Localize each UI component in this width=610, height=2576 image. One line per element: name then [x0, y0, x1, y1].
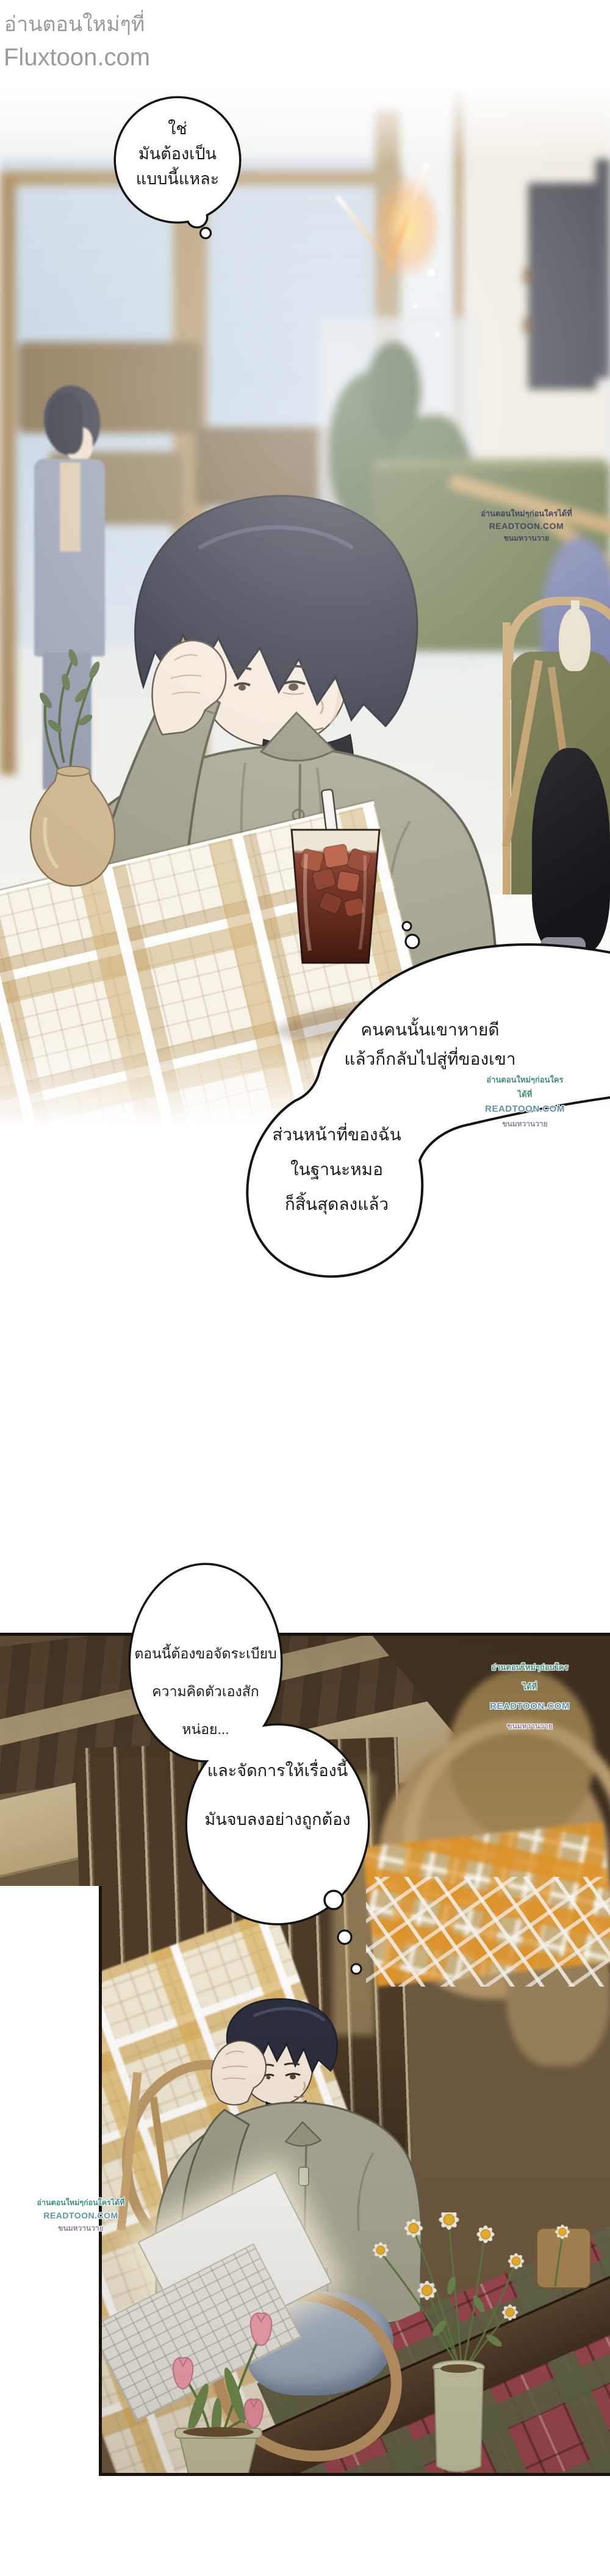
watermark-line1: อ่านตอนใหม่ๆก่อนใครได้ที่	[481, 508, 572, 520]
watermark-line3: ขนมหวานวาย	[30, 2222, 131, 2235]
bubble2-line: แล้วก็กลับไปสู่ที่ของเขา	[293, 1045, 567, 1074]
glass-bubble	[412, 303, 418, 309]
bubble3-line: ก็สิ้นสุดลงแล้ว	[245, 1187, 428, 1221]
glass-bubble	[427, 268, 436, 277]
bubble4-text: ตอนนี้ต้องขอจัดระเบียบ ความคิดตัวเองสักห…	[132, 1635, 279, 1748]
wood-pillar	[564, 2023, 610, 2476]
panel2-border-left	[99, 1886, 102, 2476]
thought-tail-dot	[406, 935, 419, 948]
bubble4-line: ความคิดตัวเองสักหน่อย...	[132, 1672, 279, 1748]
plant-leaves	[37, 648, 101, 735]
watermark-line3: ขนมหวานวาย	[486, 1716, 574, 1736]
bubble4-line: ตอนนี้ต้องขอจัดระเบียบ	[132, 1635, 279, 1672]
vase-soil	[440, 2364, 477, 2373]
bubble3-line: ส่วนหน้าที่ของฉัน	[245, 1117, 428, 1152]
webtoon-page: อ่านตอนใหม่ๆที่ Fluxtoon.com	[0, 0, 610, 2576]
watermark-line1: อ่านตอนใหม่ๆก่อนใครได้ที่	[486, 1658, 574, 1697]
watermark-readtoon-3: อ่านตอนใหม่ๆก่อนใครได้ที่ READTOON.COM ข…	[486, 1658, 574, 1736]
panel2-border-bottom	[99, 2473, 610, 2476]
watermark-line3: ขนมหวานวาย	[481, 532, 572, 544]
watermark-readtoon-4: อ่านตอนใหม่ๆก่อนใครได้ที่ READTOON.COM ข…	[30, 2196, 131, 2235]
pot-soil	[183, 2427, 254, 2437]
thought-tail-dot	[338, 1930, 351, 1944]
watermark-readtoon-2: อ่านตอนใหม่ๆก่อนใครได้ที่ READTOON.COM ข…	[481, 1073, 569, 1131]
thought-tail-dot	[403, 922, 411, 930]
watermark-line2: READTOON.COM	[486, 1697, 574, 1716]
bubble5-line: และจัดการให้เรื่องนี้	[190, 1746, 365, 1795]
tulip-pot	[143, 2304, 290, 2475]
picture-frame	[595, 159, 610, 378]
plant-foliage	[366, 342, 421, 439]
daisy-stems	[381, 2222, 562, 2367]
bubble1-line: ใช่	[118, 117, 237, 142]
bubble5-text: และจัดการให้เรื่องนี้ มันจบลงอย่างถูกต้อ…	[190, 1746, 365, 1844]
watermark-line2: READTOON.COM	[30, 2209, 131, 2222]
bubble3-text: ส่วนหน้าที่ของฉัน ในฐานะหมอ ก็สิ้นสุดลงแ…	[245, 1117, 428, 1221]
thought-tail-dot	[201, 228, 211, 239]
bubble1-line: มันต้องเป็น	[118, 142, 237, 167]
bubble5-line: มันจบลงอย่างถูกต้อง	[190, 1795, 365, 1844]
watermark-line1: อ่านตอนใหม่ๆก่อนใครได้ที่	[30, 2196, 131, 2209]
watermark-line3: ขนมหวานวาย	[481, 1117, 569, 1131]
frame-hinge	[523, 268, 532, 284]
bubble3-line: ในฐานะหมอ	[245, 1152, 428, 1187]
woman-hair-bang	[48, 393, 83, 454]
watermark-line2: READTOON.COM	[481, 520, 572, 532]
header-line2-site-url: Fluxtoon.com	[4, 41, 145, 74]
picture-frame	[528, 183, 597, 389]
watermark-readtoon-1: อ่านตอนใหม่ๆก่อนใครได้ที่ READTOON.COM ข…	[481, 508, 572, 544]
bud-vase-plant	[12, 635, 116, 915]
bubble1-line: แบบนี้แหละ	[118, 167, 237, 192]
watermark-line2: READTOON.COM	[481, 1102, 569, 1117]
bubble2-line: คนคนนั้นเขาหายดี	[293, 1015, 567, 1045]
thought-tail-dot	[325, 1891, 343, 1909]
pot-body	[180, 2438, 257, 2473]
watermark-line1: อ่านตอนใหม่ๆก่อนใครได้ที่	[481, 1073, 569, 1102]
tulip-flowers	[173, 2313, 272, 2428]
site-header: อ่านตอนใหม่ๆที่ Fluxtoon.com	[4, 8, 145, 74]
thought-tail-dot	[351, 1964, 361, 1974]
bubble2-text: คนคนนั้นเขาหายดี แล้วก็กลับไปสู่ที่ของเข…	[293, 1015, 567, 1074]
top-fade	[0, 85, 610, 165]
bubble1-text: ใช่ มันต้องเป็น แบบนี้แหละ	[118, 117, 237, 192]
daisy-vase-body	[434, 2369, 483, 2472]
white-grid-railing	[366, 1877, 610, 1987]
frame-hinge	[523, 317, 532, 333]
left-margin-mask	[0, 1886, 99, 2476]
shelf-vase-neck	[571, 600, 579, 620]
glass-bubble	[434, 332, 440, 337]
header-line1: อ่านตอนใหม่ๆที่	[4, 8, 145, 41]
